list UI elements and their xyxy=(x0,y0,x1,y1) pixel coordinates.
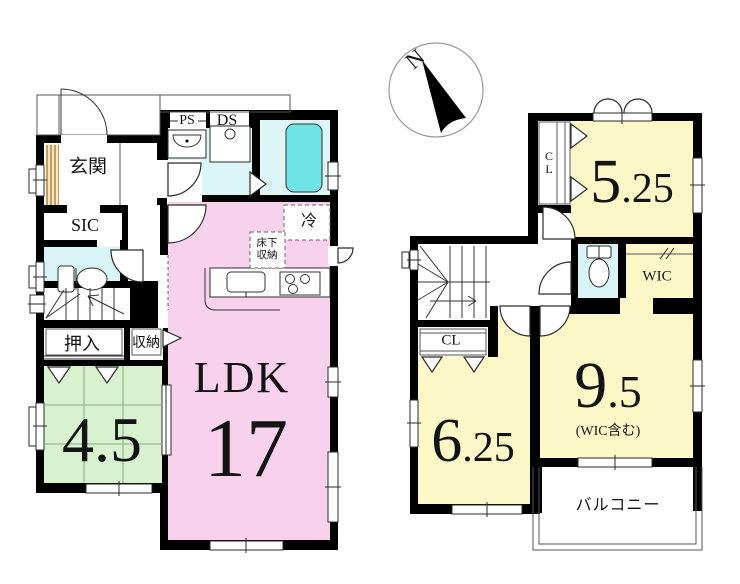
label-room-625-size: 6.25 xyxy=(431,410,515,472)
label-room-95-note: (WIC含む) xyxy=(576,425,641,439)
north-arrow-needle xyxy=(422,60,466,133)
label-room-95-size: 9.5 xyxy=(574,353,642,419)
opening-wic xyxy=(620,298,653,314)
label-cl-525: CL xyxy=(543,150,555,176)
room-toilet-1f xyxy=(44,247,120,281)
opening-toilet1f xyxy=(97,240,120,247)
back-door-arc xyxy=(338,248,353,263)
entrance-step xyxy=(46,145,59,205)
doorway-525 xyxy=(538,213,571,244)
opening-sic xyxy=(67,200,100,213)
label-ldk-size: 17 xyxy=(204,407,288,491)
label-wic: WIC xyxy=(642,270,671,285)
label-tatami-size: 4.5 xyxy=(62,408,142,472)
hall-2f xyxy=(490,244,571,306)
room-stairs-2f xyxy=(418,244,490,320)
label-cl-2f: CL xyxy=(441,334,460,349)
label-ldk: LDK xyxy=(194,356,290,400)
label-room-525-size: 5.25 xyxy=(590,151,674,213)
label-underfloor-storage: 床下収納 xyxy=(257,238,278,262)
label-balcony: バルコニー xyxy=(576,498,661,514)
entrance-door-arc xyxy=(61,89,107,135)
wall-balcony-right-stub xyxy=(693,467,702,511)
room-bath xyxy=(260,120,330,195)
floorplan: 玄関 SIC PS DS 冷 床下収納 押入 収納 4.5 LDK 17 CL … xyxy=(0,0,740,584)
label-north: N xyxy=(401,45,429,73)
label-storage: 収納 xyxy=(132,337,160,351)
label-entrance: 玄関 xyxy=(69,158,107,177)
label-ps: PS xyxy=(179,114,195,128)
label-oshiire: 押入 xyxy=(64,335,100,353)
wall-balcony-left-stub xyxy=(532,467,542,513)
hall-1f xyxy=(167,160,202,205)
room-stairs-1f xyxy=(44,288,130,320)
room-625-b xyxy=(498,314,530,357)
corridor-1f xyxy=(128,205,160,281)
room-toilet-2f xyxy=(578,244,618,298)
hall-2f-ext xyxy=(498,306,530,314)
label-fridge: 冷 xyxy=(301,214,317,230)
label-sic: SIC xyxy=(71,216,99,234)
label-ds: DS xyxy=(217,113,237,129)
